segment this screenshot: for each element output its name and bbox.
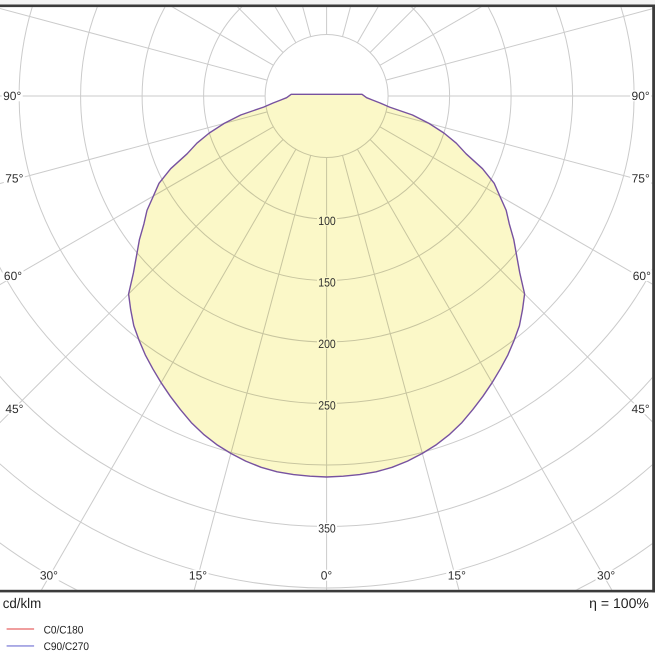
svg-text:250: 250: [318, 398, 336, 412]
svg-text:15°: 15°: [189, 569, 207, 583]
svg-text:75°: 75°: [5, 172, 23, 186]
svg-text:75°: 75°: [632, 172, 650, 186]
svg-text:45°: 45°: [5, 402, 23, 416]
svg-text:30°: 30°: [40, 569, 58, 583]
svg-text:350: 350: [318, 521, 336, 535]
svg-text:15°: 15°: [448, 569, 466, 583]
svg-text:90°: 90°: [3, 89, 21, 103]
svg-text:45°: 45°: [632, 402, 650, 416]
svg-text:0°: 0°: [321, 569, 333, 583]
svg-text:100: 100: [318, 214, 336, 228]
svg-text:cd/klm: cd/klm: [3, 595, 42, 611]
svg-text:C0/C180: C0/C180: [44, 624, 84, 636]
svg-text:200: 200: [318, 337, 336, 351]
svg-text:C90/C270: C90/C270: [44, 641, 89, 653]
svg-text:η = 100%: η = 100%: [589, 595, 649, 611]
svg-text:30°: 30°: [597, 569, 615, 583]
svg-text:60°: 60°: [4, 269, 22, 283]
svg-text:90°: 90°: [632, 89, 650, 103]
svg-text:60°: 60°: [633, 269, 651, 283]
svg-text:150: 150: [318, 275, 336, 289]
